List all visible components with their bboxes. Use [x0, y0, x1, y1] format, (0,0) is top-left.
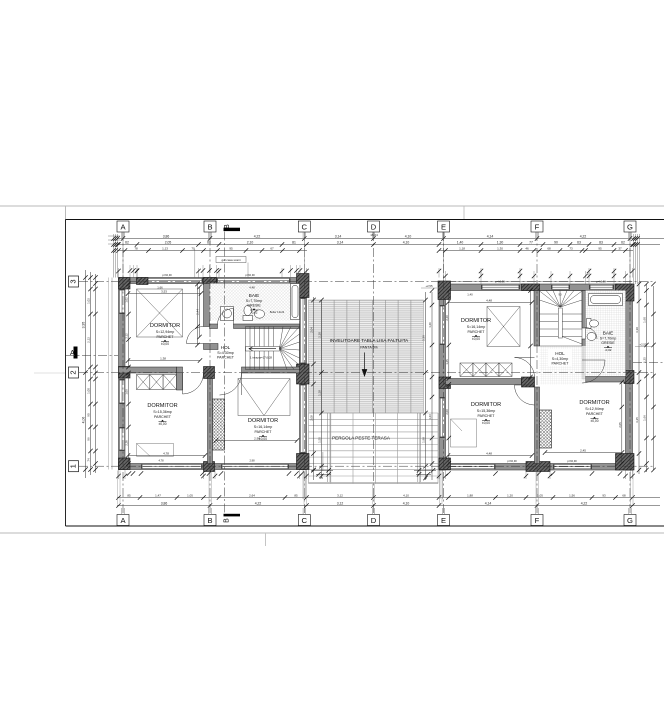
svg-text:DORMITOR: DORMITOR — [579, 400, 609, 406]
svg-text:1,30: 1,30 — [497, 240, 504, 244]
svg-text:90: 90 — [558, 293, 562, 297]
svg-text:81: 81 — [292, 240, 296, 244]
svg-text:B: B — [207, 516, 212, 525]
svg-text:±0,00: ±0,00 — [472, 337, 480, 341]
svg-text:1,40: 1,40 — [467, 293, 473, 297]
svg-text:±0,00: ±0,00 — [482, 421, 490, 425]
svg-text:G: G — [627, 516, 633, 525]
svg-text:F: F — [535, 516, 540, 525]
svg-text:2,00: 2,00 — [445, 409, 449, 415]
svg-text:3,12: 3,12 — [337, 501, 344, 505]
svg-text:PARCHET: PARCHET — [154, 415, 172, 419]
svg-text:p=h0,90: p=h0,90 — [567, 459, 577, 463]
svg-text:3,12: 3,12 — [337, 493, 343, 497]
svg-text:4,14: 4,14 — [485, 501, 492, 505]
svg-text:1,13: 1,13 — [162, 246, 168, 250]
svg-text:S=15,36mp: S=15,36mp — [477, 409, 495, 413]
svg-text:p=h0,90: p=h0,90 — [162, 273, 172, 277]
svg-text:85: 85 — [127, 493, 131, 497]
svg-text:77: 77 — [529, 240, 533, 244]
svg-text:62: 62 — [621, 240, 625, 244]
svg-text:GRESIE: GRESIE — [601, 341, 615, 345]
svg-text:4,48: 4,48 — [486, 298, 492, 302]
svg-text:DORMITOR: DORMITOR — [461, 318, 491, 324]
svg-text:S=4,30mp: S=4,30mp — [552, 357, 568, 361]
svg-text:3,53: 3,53 — [161, 289, 167, 293]
svg-text:1,47: 1,47 — [155, 493, 161, 497]
svg-text:73: 73 — [569, 246, 573, 250]
svg-text:HOL: HOL — [555, 351, 565, 356]
svg-text:1,25: 1,25 — [445, 359, 449, 365]
svg-text:E: E — [441, 516, 446, 525]
svg-text:+2,55: +2,55 — [639, 343, 647, 347]
svg-text:3,25: 3,25 — [635, 417, 639, 423]
svg-text:70: 70 — [191, 246, 195, 250]
svg-text:3,14: 3,14 — [337, 240, 344, 244]
svg-text:p=h0,90: p=h0,90 — [245, 273, 255, 277]
svg-text:2,12: 2,12 — [125, 333, 129, 339]
svg-text:D: D — [371, 222, 377, 231]
svg-text:3,30: 3,30 — [635, 327, 639, 333]
svg-text:4,48: 4,48 — [486, 451, 492, 455]
svg-text:p=h0,90: p=h0,90 — [596, 280, 606, 284]
svg-text:1,88: 1,88 — [467, 493, 473, 497]
svg-text:PARCHET: PARCHET — [468, 330, 486, 334]
svg-text:78: 78 — [134, 246, 138, 250]
svg-text:F: F — [535, 222, 540, 231]
svg-text:PERGOLA PESTE TERASA: PERGOLA PESTE TERASA — [332, 436, 391, 441]
svg-text:1,05: 1,05 — [537, 493, 543, 497]
svg-text:GRESIE: GRESIE — [247, 304, 261, 308]
svg-text:68: 68 — [207, 240, 211, 244]
svg-text:83: 83 — [599, 240, 603, 244]
svg-text:PANTA 5%: PANTA 5% — [360, 346, 378, 350]
svg-text:68: 68 — [547, 246, 551, 250]
svg-text:90: 90 — [87, 413, 91, 417]
svg-text:p=h0,90: p=h0,90 — [495, 280, 505, 284]
svg-text:2,10: 2,10 — [318, 332, 322, 338]
svg-text:96: 96 — [87, 437, 91, 441]
svg-text:2,26: 2,26 — [125, 440, 129, 446]
svg-text:1,56: 1,56 — [569, 493, 575, 497]
svg-text:4,14: 4,14 — [487, 234, 494, 238]
svg-text:1,18: 1,18 — [318, 390, 322, 396]
svg-text:46: 46 — [525, 246, 529, 250]
svg-text:4,22: 4,22 — [255, 501, 262, 505]
svg-text:4,10: 4,10 — [403, 493, 409, 497]
svg-text:1,05: 1,05 — [187, 493, 193, 497]
svg-text:S=16,14mp: S=16,14mp — [254, 425, 272, 429]
svg-text:DORMITOR: DORMITOR — [150, 323, 180, 329]
svg-text:4,10: 4,10 — [403, 501, 410, 505]
svg-text:B: B — [224, 518, 231, 523]
svg-text:PARCHET: PARCHET — [552, 362, 570, 366]
svg-text:±0,00: ±0,00 — [159, 422, 167, 426]
svg-text:3,86: 3,86 — [161, 501, 168, 505]
svg-text:1,66: 1,66 — [643, 415, 647, 421]
svg-text:2,05: 2,05 — [618, 422, 622, 428]
svg-text:E: E — [441, 222, 446, 231]
svg-text:4,22: 4,22 — [254, 234, 261, 238]
svg-text:C: C — [302, 222, 308, 231]
svg-text:2,98: 2,98 — [249, 459, 255, 463]
svg-text:-0,02: -0,02 — [605, 348, 612, 352]
svg-text:37: 37 — [618, 246, 622, 250]
svg-text:D: D — [371, 516, 377, 525]
svg-text:S=4,30mp: S=4,30mp — [217, 351, 233, 355]
svg-text:85: 85 — [294, 493, 298, 497]
svg-text:1,98: 1,98 — [422, 437, 426, 443]
svg-text:4,48: 4,48 — [249, 286, 255, 290]
svg-text:4,78: 4,78 — [163, 451, 169, 455]
svg-text:4,78: 4,78 — [158, 459, 164, 463]
svg-text:S=12,94mp: S=12,94mp — [156, 330, 174, 334]
svg-text:PARCHET: PARCHET — [478, 414, 496, 418]
svg-text:1,60: 1,60 — [643, 317, 647, 323]
svg-text:2: 2 — [69, 370, 78, 374]
svg-text:1: 1 — [69, 464, 78, 468]
svg-text:C: C — [302, 516, 308, 525]
svg-text:PARCHET: PARCHET — [255, 430, 273, 434]
svg-text:2,10: 2,10 — [247, 240, 254, 244]
svg-text:1,23: 1,23 — [428, 414, 432, 420]
svg-text:S=7,70mp: S=7,70mp — [600, 337, 616, 341]
svg-text:S=15,36mp: S=15,36mp — [153, 410, 171, 414]
svg-text:68: 68 — [622, 493, 626, 497]
svg-text:BAIE: BAIE — [603, 331, 613, 336]
svg-text:2,20: 2,20 — [445, 315, 449, 321]
svg-text:2,12: 2,12 — [87, 337, 91, 343]
svg-text:HOL: HOL — [221, 345, 231, 350]
svg-text:1,20: 1,20 — [428, 322, 432, 328]
svg-text:S=7,70mp: S=7,70mp — [246, 299, 262, 303]
svg-text:74: 74 — [87, 458, 91, 462]
svg-text:S=16,14mp: S=16,14mp — [467, 325, 485, 329]
svg-text:1,38: 1,38 — [160, 356, 166, 360]
svg-text:2,08: 2,08 — [310, 415, 314, 421]
svg-text:2,04: 2,04 — [310, 327, 314, 333]
svg-text:3,86: 3,86 — [163, 234, 170, 238]
svg-text:DORMITOR: DORMITOR — [248, 418, 278, 424]
svg-text:95: 95 — [229, 246, 233, 250]
svg-text:16,64: 16,64 — [370, 233, 378, 237]
svg-text:Boiler 13x22: Boiler 13x22 — [270, 310, 285, 314]
svg-text:PARCHET: PARCHET — [586, 412, 604, 416]
svg-text:1,66: 1,66 — [157, 286, 163, 290]
svg-text:1,00: 1,00 — [87, 388, 91, 394]
svg-text:1,40: 1,40 — [457, 240, 464, 244]
svg-text:4,22: 4,22 — [581, 501, 588, 505]
svg-text:2,05: 2,05 — [165, 240, 172, 244]
svg-text:2,64: 2,64 — [249, 493, 255, 497]
svg-text:PARCHET: PARCHET — [157, 335, 175, 339]
svg-text:DORMITOR: DORMITOR — [147, 403, 177, 409]
svg-text:4,10: 4,10 — [403, 240, 410, 244]
svg-text:62: 62 — [125, 240, 129, 244]
svg-text:S=12,94mp: S=12,94mp — [585, 407, 603, 411]
svg-text:±0,00: ±0,00 — [591, 419, 599, 423]
svg-text:90: 90 — [554, 240, 558, 244]
svg-text:4,10: 4,10 — [405, 234, 412, 238]
svg-text:93: 93 — [602, 493, 606, 497]
svg-text:1,02: 1,02 — [125, 297, 129, 303]
svg-text:+2,55: +2,55 — [425, 284, 433, 288]
svg-text:4,06: 4,06 — [82, 417, 86, 424]
svg-text:63: 63 — [577, 240, 581, 244]
svg-text:3,95: 3,95 — [82, 322, 86, 329]
svg-text:1 treapta=17,6/28: 1 treapta=17,6/28 — [250, 356, 272, 360]
svg-text:-0,02: -0,02 — [251, 311, 258, 315]
svg-text:1,20: 1,20 — [507, 493, 513, 497]
svg-text:1,02: 1,02 — [87, 298, 91, 304]
svg-text:DORMITOR: DORMITOR — [471, 402, 501, 408]
svg-text:1,25: 1,25 — [643, 357, 647, 363]
svg-text:3,14: 3,14 — [335, 234, 342, 238]
svg-text:G: G — [627, 222, 633, 231]
svg-text:INVELITOARE TABLA LISA FALTUIT: INVELITOARE TABLA LISA FALTUITA — [330, 338, 409, 343]
svg-text:95: 95 — [598, 246, 602, 250]
svg-text:1,00: 1,00 — [125, 389, 129, 395]
svg-text:BAIE: BAIE — [249, 293, 259, 298]
svg-text:1,30: 1,30 — [497, 246, 503, 250]
svg-text:PARCHET: PARCHET — [217, 356, 235, 360]
svg-text:1,55: 1,55 — [318, 437, 322, 443]
svg-text:2,36: 2,36 — [422, 335, 426, 341]
svg-text:67: 67 — [270, 246, 274, 250]
svg-text:p=h0,90: p=h0,90 — [507, 459, 517, 463]
svg-text:±0,00: ±0,00 — [161, 342, 169, 346]
svg-text:1,18: 1,18 — [459, 246, 465, 250]
svg-text:2,98: 2,98 — [254, 436, 260, 440]
svg-text:3: 3 — [69, 279, 78, 283]
svg-text:4,22: 4,22 — [580, 234, 587, 238]
svg-text:2,45: 2,45 — [580, 448, 586, 452]
svg-text:B: B — [207, 222, 212, 231]
